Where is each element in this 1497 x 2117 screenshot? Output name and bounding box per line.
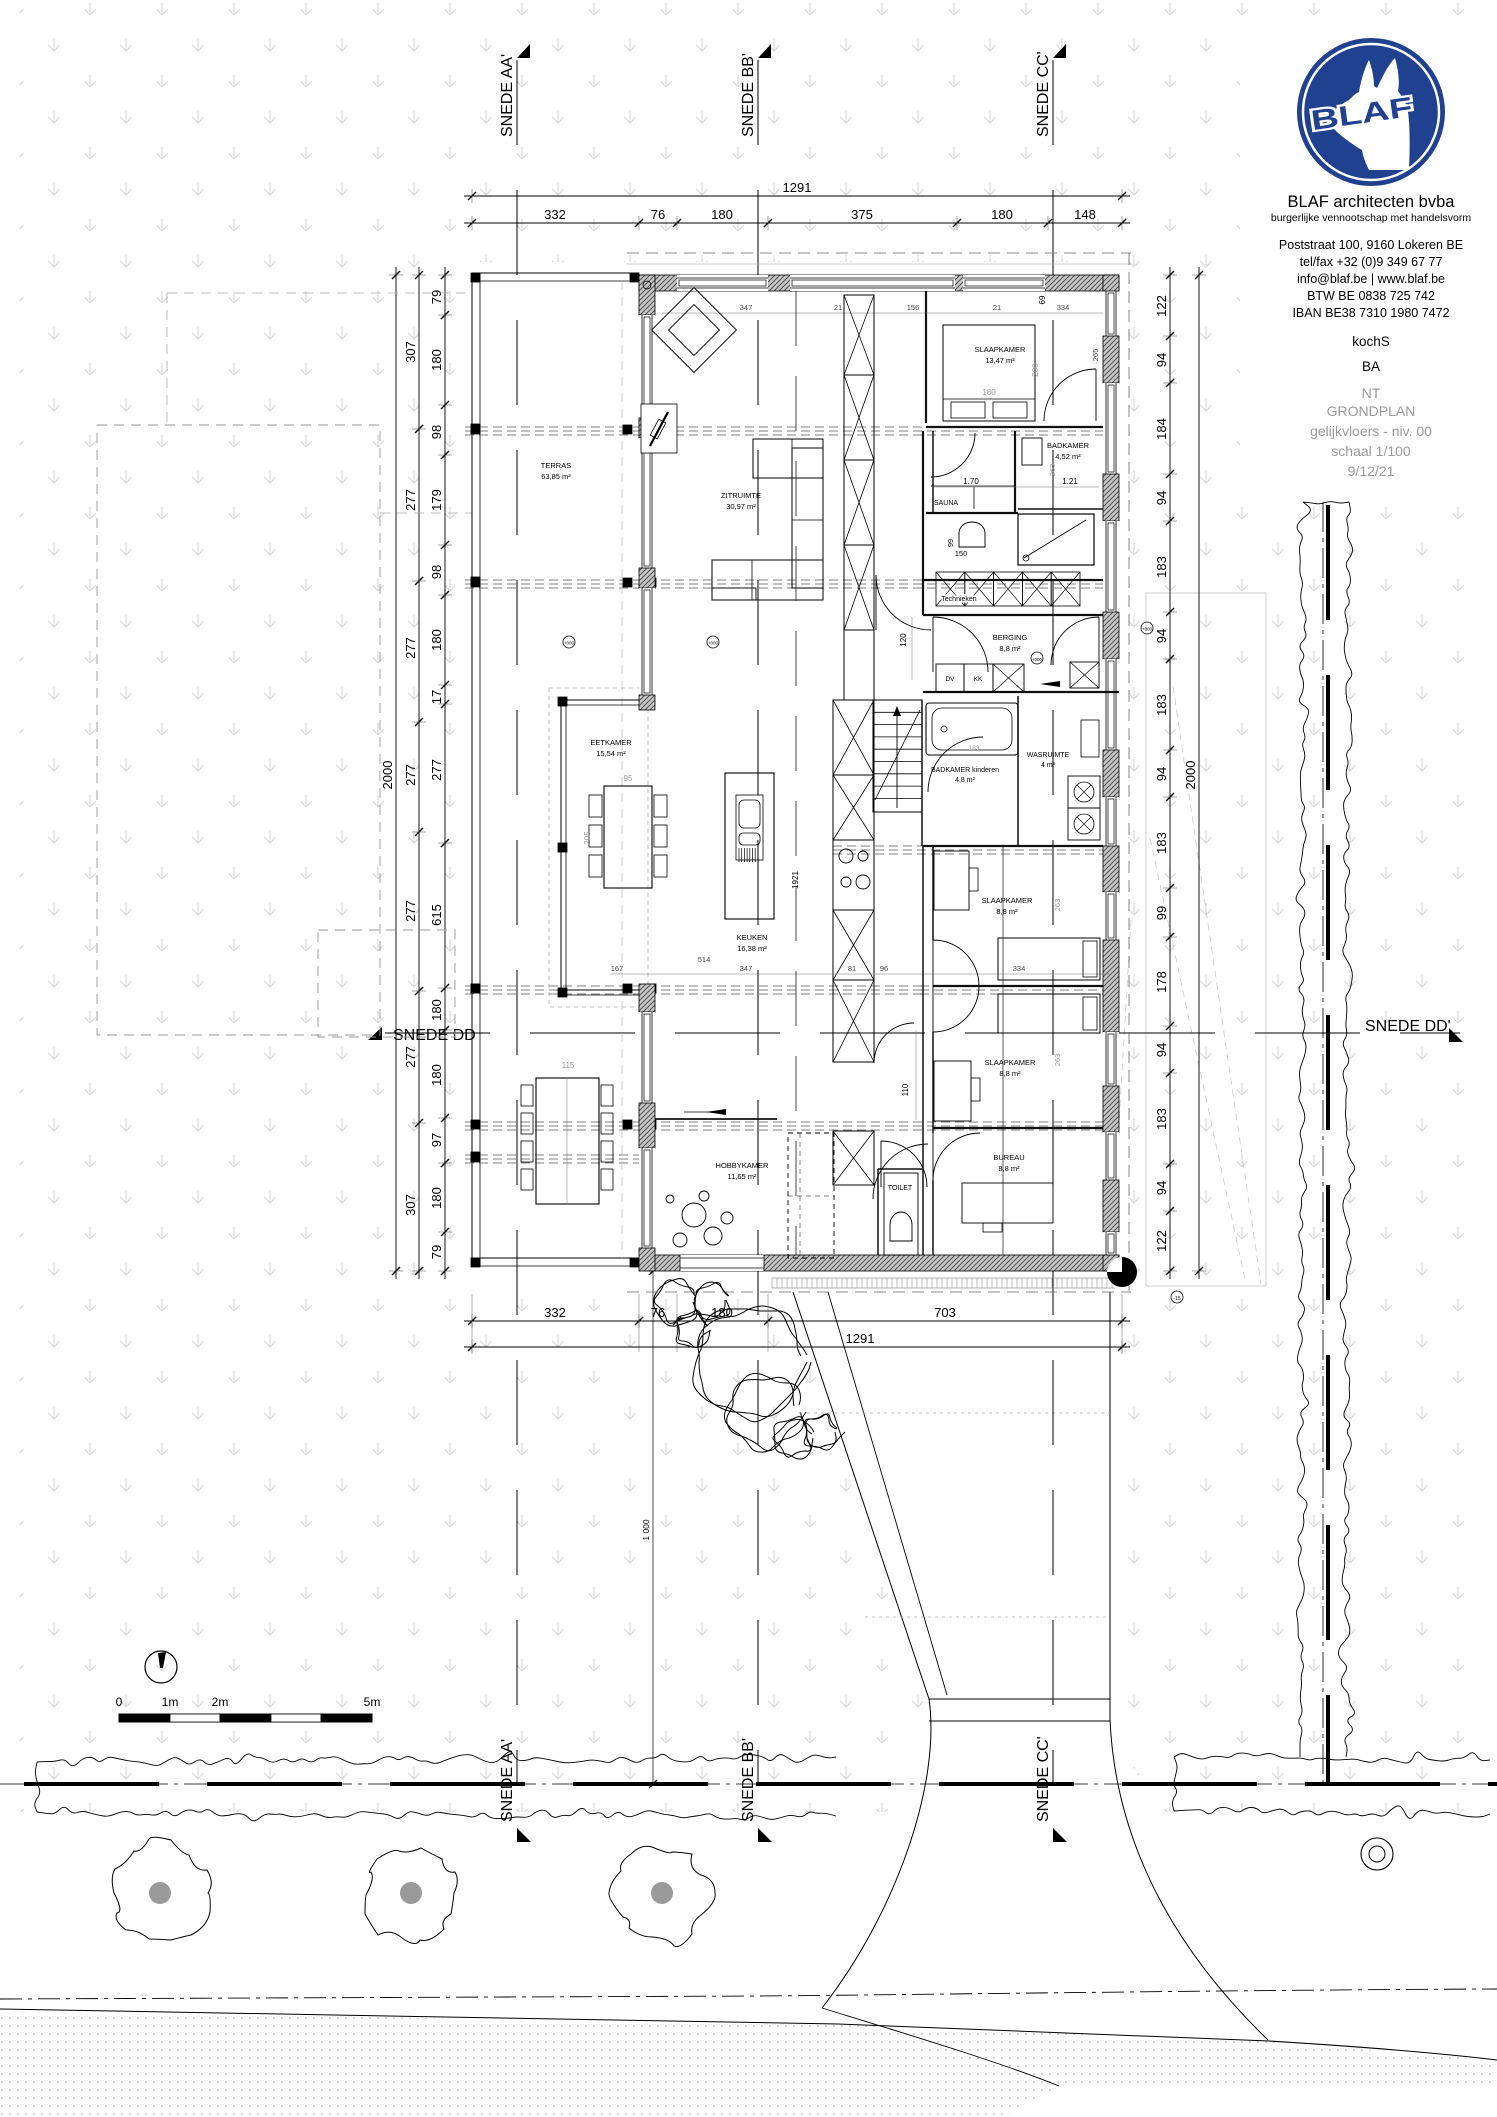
svg-text:183: 183 <box>969 745 980 752</box>
svg-text:4,52 m²: 4,52 m² <box>1055 452 1081 461</box>
svg-text:69: 69 <box>1038 295 1047 304</box>
svg-text:180: 180 <box>711 1305 733 1320</box>
svg-text:+000: +000 <box>564 641 575 646</box>
svg-text:180: 180 <box>429 629 444 651</box>
svg-text:277: 277 <box>403 764 418 786</box>
svg-text:180: 180 <box>429 1187 444 1209</box>
svg-text:96: 96 <box>880 964 888 973</box>
svg-text:HOBBYKAMER: HOBBYKAMER <box>716 1161 770 1170</box>
svg-text:167: 167 <box>611 964 624 973</box>
svg-text:17: 17 <box>429 690 444 704</box>
svg-text:178: 178 <box>1154 971 1169 993</box>
svg-text:514: 514 <box>698 955 711 964</box>
svg-text:kochS: kochS <box>1352 334 1390 349</box>
svg-text:94: 94 <box>1154 353 1169 367</box>
svg-text:122: 122 <box>1154 1230 1169 1252</box>
svg-text:4,8 m²: 4,8 m² <box>955 777 976 784</box>
svg-text:BUREAU: BUREAU <box>993 1153 1024 1162</box>
svg-text:332: 332 <box>544 1305 566 1320</box>
svg-text:180: 180 <box>429 349 444 371</box>
svg-text:BTW BE 0838 725 742: BTW BE 0838 725 742 <box>1307 289 1435 303</box>
svg-text:334: 334 <box>1013 964 1026 973</box>
svg-text:94: 94 <box>1154 629 1169 643</box>
svg-text:277: 277 <box>403 489 418 511</box>
svg-text:1.70: 1.70 <box>963 477 979 486</box>
svg-text:277: 277 <box>429 759 444 781</box>
svg-text:BADKAMER: BADKAMER <box>1047 441 1090 450</box>
svg-text:5m: 5m <box>364 1695 381 1709</box>
svg-text:150: 150 <box>955 549 968 558</box>
svg-text:13,47 m²: 13,47 m² <box>985 356 1015 365</box>
svg-text:99: 99 <box>946 539 955 547</box>
svg-text:375: 375 <box>851 207 873 222</box>
svg-text:95: 95 <box>624 774 633 783</box>
svg-text:SAUNA: SAUNA <box>934 500 958 507</box>
svg-text:347: 347 <box>740 303 753 312</box>
svg-text:Technieken: Technieken <box>941 596 977 603</box>
svg-text:184: 184 <box>1154 418 1169 440</box>
svg-text:2000: 2000 <box>380 761 395 790</box>
svg-text:KK: KK <box>974 676 983 683</box>
svg-text:94: 94 <box>1154 491 1169 505</box>
svg-text:11,65 m²: 11,65 m² <box>727 1172 757 1181</box>
svg-text:SNEDE CC': SNEDE CC' <box>1035 51 1052 137</box>
svg-text:148: 148 <box>1074 207 1096 222</box>
svg-text:332: 332 <box>544 207 566 222</box>
svg-text:277: 277 <box>403 637 418 659</box>
svg-text:703: 703 <box>934 1305 956 1320</box>
svg-text:183: 183 <box>1154 694 1169 716</box>
svg-text:615: 615 <box>429 904 444 926</box>
svg-text:BERGING: BERGING <box>993 633 1028 642</box>
svg-text:179: 179 <box>429 489 444 511</box>
svg-text:SLAAPKAMER: SLAAPKAMER <box>982 896 1033 905</box>
svg-text:BA: BA <box>1362 359 1380 374</box>
svg-text:2m: 2m <box>212 1695 229 1709</box>
svg-text:+000: +000 <box>1142 627 1153 632</box>
svg-text:183: 183 <box>1154 556 1169 578</box>
svg-text:21: 21 <box>993 303 1001 312</box>
svg-text:263: 263 <box>1048 464 1057 477</box>
svg-text:BADKAMER kinderen: BADKAMER kinderen <box>931 767 999 774</box>
svg-text:+000: +000 <box>1032 657 1043 662</box>
svg-text:205: 205 <box>583 831 592 845</box>
svg-text:TERRAS: TERRAS <box>541 461 571 470</box>
svg-text:Poststraat 100, 9160 Lokeren B: Poststraat 100, 9160 Lokeren BE <box>1279 238 1463 252</box>
svg-text:79: 79 <box>429 290 444 304</box>
svg-text:SLAAPKAMER: SLAAPKAMER <box>985 1058 1036 1067</box>
svg-text:16,38 m²: 16,38 m² <box>737 944 767 953</box>
svg-text:EETKAMER: EETKAMER <box>590 738 632 747</box>
svg-text:94: 94 <box>1154 767 1169 781</box>
svg-text:76: 76 <box>651 207 665 222</box>
svg-text:76: 76 <box>651 1305 665 1320</box>
svg-text:1291: 1291 <box>846 1331 875 1346</box>
svg-text:IBAN BE38 7310 1980 7472: IBAN BE38 7310 1980 7472 <box>1292 306 1449 320</box>
svg-text:156: 156 <box>907 303 920 312</box>
svg-text:info@blaf.be | www.blaf.be: info@blaf.be | www.blaf.be <box>1297 272 1445 286</box>
svg-text:8,8 m²: 8,8 m² <box>999 1069 1021 1078</box>
svg-text:9/12/21: 9/12/21 <box>1348 463 1395 479</box>
svg-text:2000: 2000 <box>1183 761 1198 790</box>
svg-text:1m: 1m <box>162 1695 179 1709</box>
svg-text:99: 99 <box>1154 906 1169 920</box>
svg-text:0: 0 <box>116 1695 123 1709</box>
svg-text:1921: 1921 <box>791 871 800 889</box>
svg-text:8,8 m²: 8,8 m² <box>999 644 1021 653</box>
svg-text:307: 307 <box>403 341 418 363</box>
svg-text:+000: +000 <box>708 641 719 646</box>
svg-text:334: 334 <box>1057 303 1070 312</box>
svg-text:122: 122 <box>1154 295 1169 317</box>
svg-text:burgerlijke vennootschap met h: burgerlijke vennootschap met handelsvorm <box>1271 212 1471 224</box>
svg-text:1.21: 1.21 <box>1062 477 1078 486</box>
svg-text:WASRUIMTE: WASRUIMTE <box>1027 752 1070 759</box>
svg-text:SNEDE AA': SNEDE AA' <box>499 54 516 137</box>
svg-text:gelijkvloers - niv. 00: gelijkvloers - niv. 00 <box>1310 423 1432 439</box>
svg-text:110: 110 <box>901 1083 910 1096</box>
svg-text:183: 183 <box>1154 832 1169 854</box>
svg-text:180: 180 <box>982 388 996 397</box>
svg-text:180: 180 <box>991 207 1013 222</box>
svg-text:schaal 1/100: schaal 1/100 <box>1331 443 1411 459</box>
svg-text:TOILET: TOILET <box>888 1185 913 1192</box>
svg-text:98: 98 <box>429 425 444 439</box>
svg-text:81: 81 <box>848 964 856 973</box>
svg-text:120: 120 <box>899 633 908 647</box>
svg-text:8,8 m²: 8,8 m² <box>996 907 1018 916</box>
svg-text:4 m²: 4 m² <box>1041 762 1056 769</box>
svg-text:8,8 m²: 8,8 m² <box>998 1164 1020 1173</box>
svg-text:263: 263 <box>1053 1054 1062 1067</box>
svg-text:183: 183 <box>1154 1108 1169 1130</box>
svg-text:265: 265 <box>1091 349 1100 362</box>
svg-text:21: 21 <box>834 303 842 312</box>
svg-text:DV: DV <box>945 676 955 683</box>
svg-text:94: 94 <box>1154 1043 1169 1057</box>
svg-text:-15: -15 <box>1173 1296 1180 1302</box>
svg-text:263: 263 <box>1053 899 1062 912</box>
svg-text:79: 79 <box>429 1245 444 1259</box>
svg-text:97: 97 <box>429 1133 444 1147</box>
svg-text:180: 180 <box>711 207 733 222</box>
svg-text:277: 277 <box>403 1046 418 1068</box>
svg-text:KEUKEN: KEUKEN <box>737 933 768 942</box>
svg-text:tel/fax +32 (0)9 349 67 77: tel/fax +32 (0)9 349 67 77 <box>1300 255 1443 269</box>
svg-text:SLAAPKAMER: SLAAPKAMER <box>975 345 1026 354</box>
svg-text:30,97 m²: 30,97 m² <box>726 502 756 511</box>
svg-text:277: 277 <box>403 900 418 922</box>
svg-text:15,54 m²: 15,54 m² <box>596 749 626 758</box>
svg-text:NT: NT <box>1362 385 1381 401</box>
svg-text:SNEDE CC': SNEDE CC' <box>1035 1736 1052 1822</box>
svg-text:SNEDE BB': SNEDE BB' <box>740 53 757 137</box>
svg-text:SNEDE DD: SNEDE DD <box>393 1027 476 1044</box>
svg-text:BLAF architecten bvba: BLAF architecten bvba <box>1288 193 1456 211</box>
svg-text:1 000: 1 000 <box>641 1519 651 1541</box>
svg-text:200: 200 <box>1031 363 1040 377</box>
svg-text:GRONDPLAN: GRONDPLAN <box>1327 403 1416 419</box>
svg-text:94: 94 <box>1154 1181 1169 1195</box>
svg-text:180: 180 <box>429 999 444 1021</box>
svg-text:SNEDE DD': SNEDE DD' <box>1365 1018 1451 1035</box>
svg-text:ZITRUIMTE: ZITRUIMTE <box>721 491 761 500</box>
svg-text:1291: 1291 <box>783 180 812 195</box>
svg-text:347: 347 <box>740 964 753 973</box>
svg-text:307: 307 <box>403 1194 418 1216</box>
svg-text:180: 180 <box>429 1064 444 1086</box>
svg-text:SNEDE BB': SNEDE BB' <box>740 1738 757 1822</box>
svg-text:115: 115 <box>562 1061 575 1070</box>
svg-text:98: 98 <box>429 565 444 579</box>
svg-text:SNEDE AA': SNEDE AA' <box>499 1739 516 1822</box>
svg-text:63,85 m²: 63,85 m² <box>541 472 571 481</box>
